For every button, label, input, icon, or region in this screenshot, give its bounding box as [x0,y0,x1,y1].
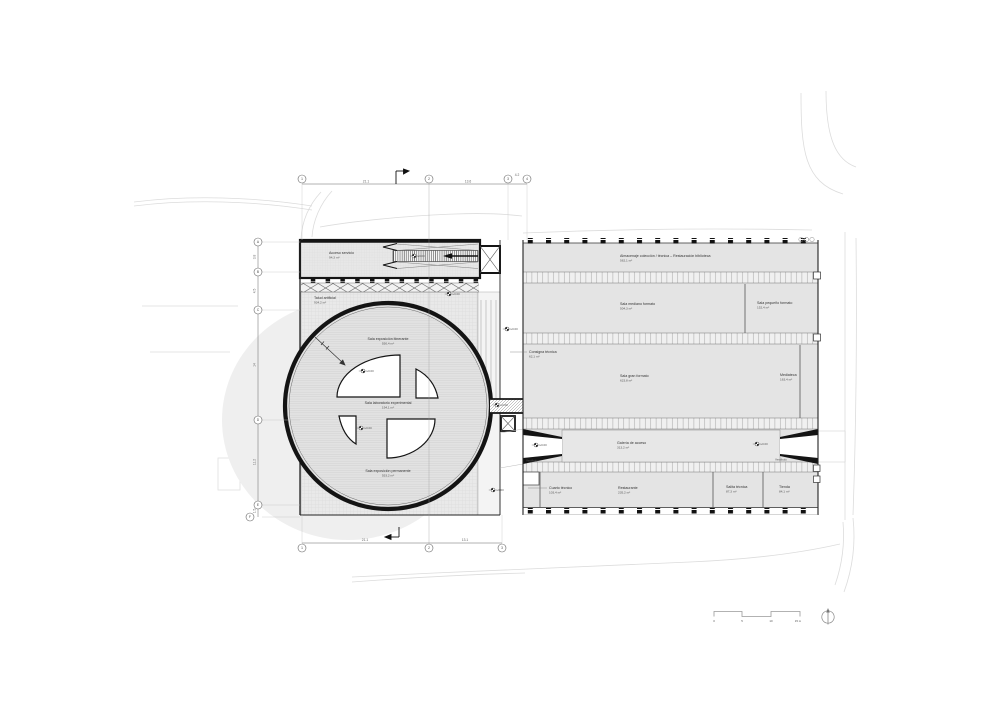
consigna-name: Consigna técnica [529,350,557,354]
grid-bubble-label: 1 [301,546,303,550]
column-row-top [527,238,816,244]
consigna-area: 62,1 m² [529,355,540,359]
room-mediano-area: 504,3 m² [620,307,632,311]
level-value: +0.00 [510,327,518,331]
room-salita-area: 87,3 m² [726,490,737,494]
dim-label: 3.8 [253,255,257,260]
level-value: +0.00 [496,488,504,492]
sala-permanente-area: 553,2 m² [382,474,394,478]
room-mediateca-area: 163,4 m² [780,378,792,382]
plaza-name: Talud artificial [314,296,336,300]
room-galeria-name: Galería de acceso [617,441,646,445]
level-value: +0.00 [452,292,460,296]
vestibulo-right-label: Vestíbulo [775,458,787,462]
grid-bubble-label: 3 [507,177,509,181]
grid-bubble-label: F [249,515,251,519]
elevator-shaft-bridge [501,416,515,431]
room-gran-area: 623,8 m² [620,379,632,383]
dim-label: 14 [253,363,257,367]
scale-label: 0 [713,619,715,623]
grid-bubble-label: 2 [428,546,430,550]
level-marker-icon: +0.00 [503,327,518,331]
colonnade-band [301,277,479,292]
grid-bubble-label: 1 [301,177,303,181]
scale-label: 5 [741,619,743,623]
room-cuarto-area: 103,4 m² [549,491,561,495]
sala-laboratorio-name: Sala laboratorio experimental [365,401,412,405]
grid-bubble-label: 2 [428,177,430,181]
room-restaurante-area: 235,2 m² [618,491,630,495]
level-value: +0.00 [364,426,372,430]
service-room [300,240,480,278]
dim-label: 11.2 [253,459,257,465]
grid-bubble-label: 4 [526,177,528,181]
scale-bar: 0 5 10 15 m [713,612,802,624]
scale-label: 10 [769,619,773,623]
level-value: +0.00 [539,443,547,447]
room-pequeno-name: Sala pequeño formato [757,301,792,305]
sala-itinerante-name: Sala exposición itinerante [368,337,409,341]
small-shaft [523,472,539,485]
dim-label: 1.5 [253,509,257,514]
sala-laboratorio-area: 194,1 m² [382,406,394,410]
floor-plan-page: Acceso servicio 94,3 m² Talud artificial… [0,0,1000,707]
dim-label: 21.1 [363,180,370,184]
grid-bubble: 1 2 3 4 [298,175,531,183]
dim-label: 13.1 [462,538,469,542]
level-value: +0.00 [760,442,768,446]
room-cuarto-name: Cuarto técnico [549,486,572,490]
room-tienda-name: Tienda [779,485,790,489]
dim-label: 4.5 [253,289,257,294]
service-room-name: Acceso servicio [329,251,354,255]
grid-bubble-label: B [257,270,259,274]
right-building [523,237,845,515]
grid-bubble-label: E [257,503,259,507]
section-marker-icon [396,169,409,184]
service-room-area: 94,3 m² [329,256,340,260]
level-value: +0.00 [366,369,374,373]
room-tienda-area: 84,1 m² [779,490,790,494]
vestibulo-left-label: Vestíbulo [526,459,538,463]
level-value: +0.00 [417,254,425,258]
sala-permanente-name: Sala exposición permanente [365,469,410,473]
grid-bubble-label: 3 [501,546,503,550]
dim-label: 13.6 [465,180,472,184]
plaza-area: 934,2 m² [314,301,326,305]
grid-bubble: 1 2 3 [298,544,506,552]
room-almacenaje-area: 562,1 m² [620,259,632,263]
room-almacenaje-name: Almacenaje colección / técnica – Restaur… [620,254,711,258]
dim-label: 4.2 [515,173,520,177]
room-pequeno-area: 152,4 m² [757,306,769,310]
column-row-bottom [527,508,816,514]
left-building [285,240,523,515]
level-value: +0.00 [500,403,508,407]
dimension-top: 1 2 3 4 21.1 13.6 4.2 [298,169,531,240]
room-salita-name: Salita técnica [726,485,747,489]
galeria-outline [562,430,780,462]
elevator-shaft-top [480,246,500,273]
room-mediano-name: Sala mediano formato [620,302,655,306]
room-gran-name: Sala gran formato [620,374,649,378]
sala-itinerante-area: 550,4 m² [382,342,394,346]
dim-label: 21.1 [362,538,369,542]
room-galeria-area: 313,2 m² [617,446,629,450]
room-mediateca-name: Mediateca [780,373,797,377]
floor-plan-drawing: Acceso servicio 94,3 m² Talud artificial… [0,0,1000,707]
scale-label: 15 m [795,619,802,623]
north-arrow-icon [822,608,834,625]
room-restaurante-name: Restaurante [618,486,638,490]
